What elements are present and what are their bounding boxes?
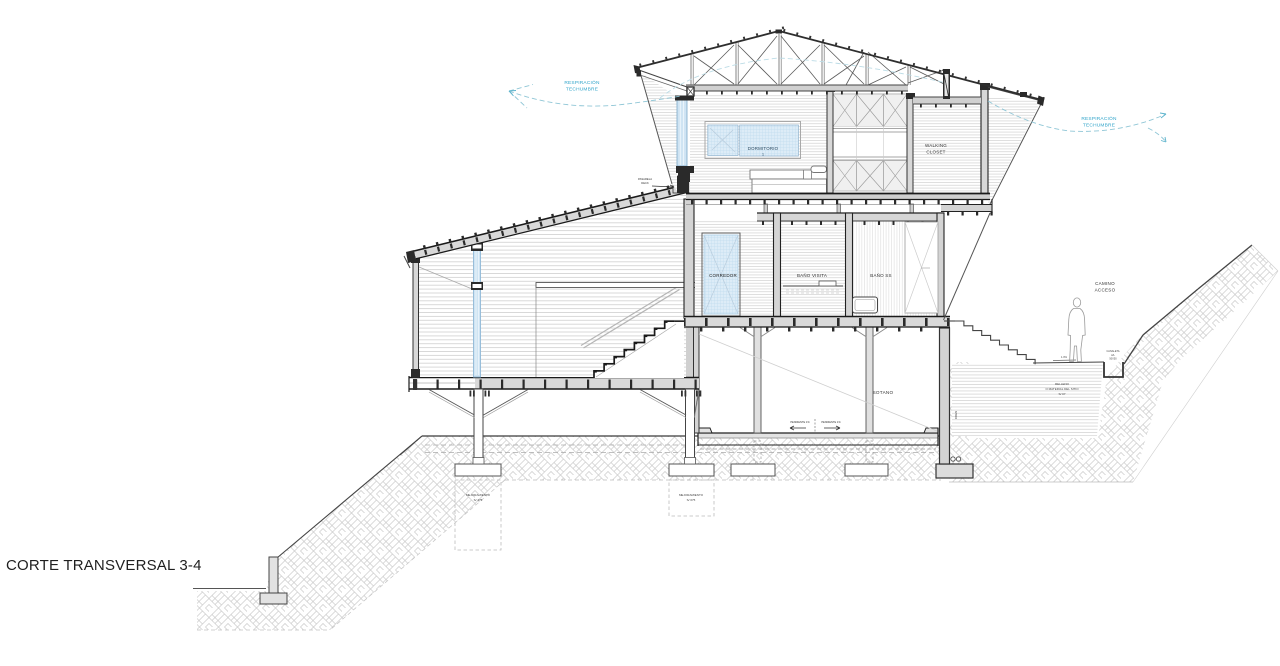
- svg-text:DECK: DECK: [641, 181, 649, 185]
- svg-text:A/L: A/L: [1111, 354, 1115, 357]
- svg-text:BAÑO SS: BAÑO SS: [870, 272, 891, 278]
- svg-text:TECHUMBRE: TECHUMBRE: [1083, 123, 1115, 129]
- svg-text:MEJORAMIENTO: MEJORAMIENTO: [466, 493, 491, 497]
- svg-text:ACCESO: ACCESO: [1095, 288, 1116, 293]
- svg-text:PENDIENTE 1%: PENDIENTE 1%: [790, 420, 810, 424]
- svg-text:O MATERIAL DEL SITIO: O MATERIAL DEL SITIO: [1045, 387, 1079, 391]
- svg-text:WALKING: WALKING: [925, 143, 947, 148]
- svg-text:DORMITORIO: DORMITORIO: [748, 146, 779, 151]
- svg-text:PENDIENTE 1%: PENDIENTE 1%: [821, 420, 841, 424]
- svg-text:CLOSET: CLOSET: [926, 150, 945, 155]
- svg-text:50X50: 50X50: [1109, 358, 1117, 361]
- svg-text:CORREDOR: CORREDOR: [709, 273, 737, 278]
- svg-text:CAMINO: CAMINO: [1095, 281, 1115, 286]
- svg-text:BAÑO VISITA: BAÑO VISITA: [797, 272, 827, 278]
- svg-text:TECHUMBRE: TECHUMBRE: [566, 87, 598, 93]
- svg-text:1.0%: 1.0%: [1061, 355, 1068, 359]
- svg-text:PASARELA: PASARELA: [638, 177, 652, 181]
- svg-text:RESPIRACIÓN: RESPIRACIÓN: [1081, 115, 1117, 122]
- svg-text:S/ 07: S/ 07: [1058, 392, 1065, 396]
- svg-text:RELLENO: RELLENO: [1055, 382, 1070, 386]
- svg-text:1: 1: [762, 153, 764, 157]
- svg-text:S/ 475: S/ 475: [474, 498, 483, 502]
- svg-text:CANALETA: CANALETA: [1106, 350, 1119, 353]
- svg-text:CORTE TRANSVERSAL 3-4: CORTE TRANSVERSAL 3-4: [6, 557, 202, 574]
- svg-text:SOTANO: SOTANO: [873, 390, 894, 395]
- svg-text:RESPIRACIÓN: RESPIRACIÓN: [564, 79, 600, 86]
- svg-text:S/ 075: S/ 075: [687, 498, 696, 502]
- svg-text:MEJORAMIENTO: MEJORAMIENTO: [679, 493, 704, 497]
- svg-text:DREN: DREN: [954, 411, 958, 420]
